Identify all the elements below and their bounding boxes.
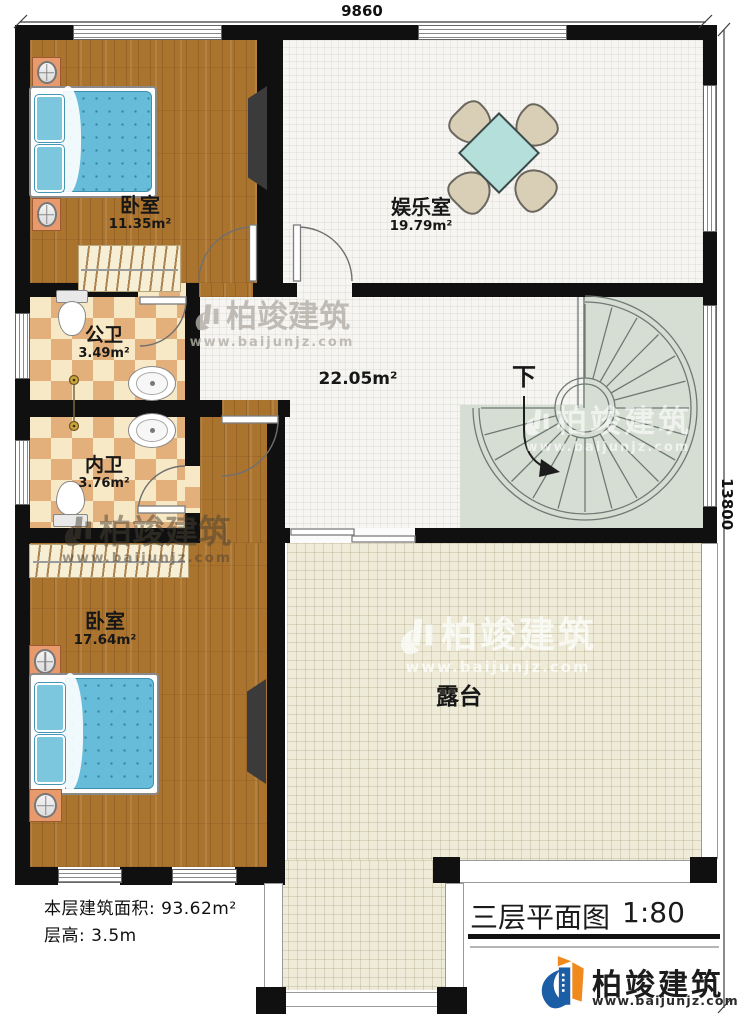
room-label-bedroom1: 卧室 11.35m² [109,194,172,233]
room-label-hallway: 22.05m² [319,370,398,390]
window [172,869,237,883]
wall [565,25,717,40]
room-label-bedroom2: 卧室 17.64m² [74,610,137,649]
pillow [35,95,64,142]
sink [128,366,176,401]
room-name: 卧室 [109,194,172,217]
wall [267,528,290,543]
window [703,305,717,507]
window [15,313,30,379]
room-label-public-bath: 公卫 3.49m² [78,325,129,362]
brand-website: www.baijunjz.com [592,993,739,1008]
wall [267,417,285,885]
wall [703,25,717,85]
room-label-terrace: 露台 [436,684,482,710]
terrace-railing-bottom [458,860,694,883]
lamp-icon [34,649,56,674]
toilet [53,514,88,527]
room-area: 3.49m² [78,347,129,362]
terrace-railing-south [284,992,439,1007]
wall [15,503,30,885]
nightstand [32,198,61,231]
title-underline [468,934,720,939]
dimension-right: 13800 [720,478,736,526]
wall [186,283,199,297]
terrace-column [433,857,460,883]
window [703,85,717,232]
bedroom2-entry-floor [200,417,267,543]
room-area: 3.76m² [78,477,129,492]
terrace-extension-floor [270,860,445,990]
room-name: 娱乐室 [390,196,453,219]
drawing-title: 三层平面图 1:80 [470,896,685,936]
drawing-scale: 1:80 [622,896,685,936]
double-bed [29,673,159,795]
floor-height-label: 层高: [44,926,85,946]
bedroom2-door-opening [222,400,278,417]
window [15,440,30,505]
floor-area-value: 93.62m² [161,899,237,919]
wardrobe [78,245,181,292]
pillow [35,145,64,192]
brand-logo-icon [536,954,590,1012]
pillow [35,683,65,732]
terrace-column [437,987,467,1014]
floor-area-info: 本层建筑面积: 93.62m² [44,894,237,919]
room-name: 公卫 [78,325,129,347]
sliding-door-opening [287,528,415,543]
wall [352,283,717,297]
terrace-railing-east [445,883,464,992]
room-label-private-bath: 内卫 3.76m² [78,455,129,492]
stair-floor-upper [583,297,703,528]
nightstand [32,57,61,88]
bedroom1-door-opening [199,283,253,297]
room-name: 卧室 [74,610,137,633]
room-name: 露台 [436,684,482,710]
pillow [35,735,65,784]
title-underline-thin [470,946,719,948]
lamp-icon [34,793,57,818]
sink [128,413,176,448]
tv [247,679,266,784]
floor-height-value: 3.5m [91,926,137,946]
terrace-railing-left [264,883,283,992]
room-area: 11.35m² [109,217,172,233]
wall [15,528,200,543]
wall [278,400,290,417]
tv [248,86,267,190]
wall [415,528,717,543]
room-label-entertainment: 娱乐室 19.79m² [390,196,453,235]
wall [253,283,297,297]
room-area: 17.64m² [74,633,137,649]
floor-area-label: 本层建筑面积: [44,899,155,919]
room-name: 内卫 [78,455,129,477]
lamp-icon [37,61,57,84]
window [418,25,567,40]
wall [120,867,172,885]
double-bed [29,86,157,198]
wall [15,25,30,313]
wall [15,867,58,885]
private-bath-door-opening [185,466,200,513]
stair-floor-lower [460,405,583,528]
window [58,869,122,883]
wall [220,25,418,40]
window [73,25,222,40]
stair-direction-label: 下 [512,364,536,392]
terrace-column [256,987,286,1014]
terrace-column [690,857,717,883]
drawing-title-text: 三层平面图 [470,896,610,936]
room-area: 19.79m² [390,219,453,235]
terrace-floor [287,543,703,860]
lamp-icon [37,202,57,227]
wall [185,297,200,466]
wall [28,400,222,417]
dimension-top: 9860 [340,2,384,20]
wardrobe [29,544,189,578]
floor-height-info: 层高: 3.5m [44,921,137,946]
room-area: 22.05m² [319,370,398,390]
nightstand [29,789,62,822]
terrace-railing-right [701,543,718,859]
floor-plan-page: 卧室 11.35m² 娱乐室 19.79m² 22.05m² 公卫 3.49m²… [0,0,750,1024]
